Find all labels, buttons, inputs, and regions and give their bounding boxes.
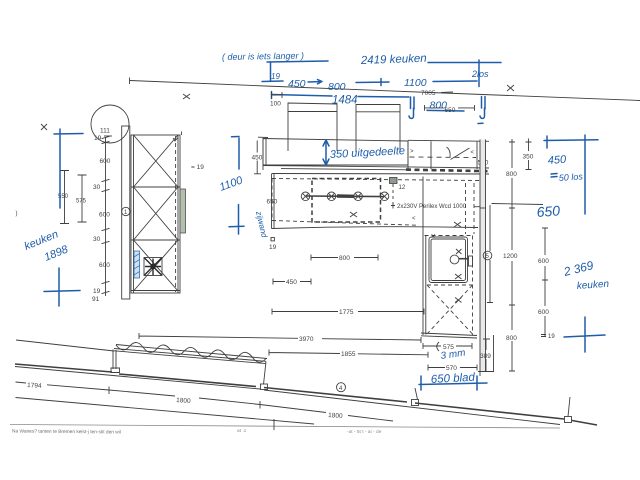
svg-text:1800: 1800 — [176, 397, 191, 405]
svg-text:19: 19 — [93, 288, 101, 295]
svg-text:1794: 1794 — [27, 382, 42, 390]
svg-text:650: 650 — [536, 202, 561, 220]
svg-text:2x230V Perilex Wcd 1000: 2x230V Perilex Wcd 1000 — [397, 204, 467, 210]
svg-text:91: 91 — [92, 296, 100, 303]
svg-text:2419 keuken: 2419 keuken — [360, 53, 427, 67]
svg-text:19: 19 — [94, 135, 102, 142]
svg-text:111: 111 — [100, 128, 110, 135]
svg-text:): ) — [16, 211, 18, 217]
svg-text:1200: 1200 — [503, 253, 518, 260]
svg-text:450: 450 — [286, 279, 297, 286]
svg-text:800: 800 — [506, 171, 517, 178]
svg-text:-at - 5t t - at - de: -at - 5t t - at - de — [347, 429, 382, 435]
svg-text:800: 800 — [339, 255, 350, 262]
svg-text:575: 575 — [76, 199, 87, 205]
svg-text:450: 450 — [252, 155, 263, 162]
svg-text:1855: 1855 — [341, 351, 356, 358]
svg-text:19: 19 — [548, 334, 555, 340]
svg-text:600: 600 — [99, 262, 110, 269]
svg-text:600: 600 — [99, 212, 110, 219]
svg-text:3970: 3970 — [299, 336, 314, 343]
svg-text:600: 600 — [100, 158, 111, 165]
svg-text:1484: 1484 — [332, 95, 358, 107]
svg-text:450: 450 — [288, 78, 306, 90]
svg-text:1100: 1100 — [404, 77, 427, 89]
svg-text:>: > — [410, 149, 414, 155]
svg-text:1800: 1800 — [328, 412, 343, 420]
svg-text:800: 800 — [328, 81, 346, 93]
svg-text:350: 350 — [523, 154, 534, 161]
svg-text:= 19: = 19 — [191, 164, 204, 171]
svg-text:( deur is iets langer ): ( deur is iets langer ) — [222, 51, 304, 62]
svg-text:2los: 2los — [471, 69, 489, 79]
svg-text:keuken: keuken — [576, 279, 609, 292]
svg-text:650: 650 — [267, 199, 278, 206]
svg-text:30: 30 — [93, 184, 101, 191]
svg-text:7005: 7005 — [421, 90, 436, 97]
svg-text:50 los: 50 los — [558, 171, 583, 183]
svg-text:at .1: at .1 — [237, 428, 247, 434]
svg-text:19: 19 — [269, 244, 277, 251]
svg-text:600: 600 — [538, 309, 549, 316]
svg-text:<: < — [471, 150, 475, 156]
svg-text:Na Wanes? tanten te Bremen ke: Na Wanes? tanten te Bremen kelst-j ten-s… — [12, 429, 121, 436]
svg-text:650: 650 — [445, 107, 456, 114]
svg-text:1775: 1775 — [339, 309, 354, 316]
svg-text:570: 570 — [446, 365, 457, 372]
svg-text:389: 389 — [480, 353, 491, 360]
svg-text:450: 450 — [547, 154, 567, 167]
svg-text:12: 12 — [399, 185, 406, 191]
svg-text:600: 600 — [538, 258, 549, 265]
svg-text:30: 30 — [93, 236, 101, 243]
svg-text:100: 100 — [270, 101, 281, 108]
svg-text:<: < — [412, 216, 416, 222]
svg-text:800: 800 — [506, 335, 517, 342]
svg-text:19: 19 — [271, 72, 280, 81]
